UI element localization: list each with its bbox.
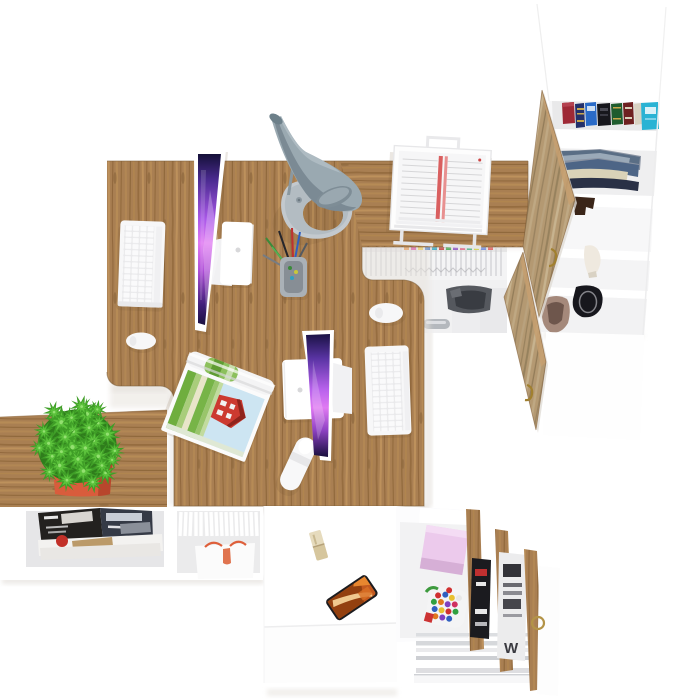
svg-text:W: W xyxy=(504,640,519,657)
